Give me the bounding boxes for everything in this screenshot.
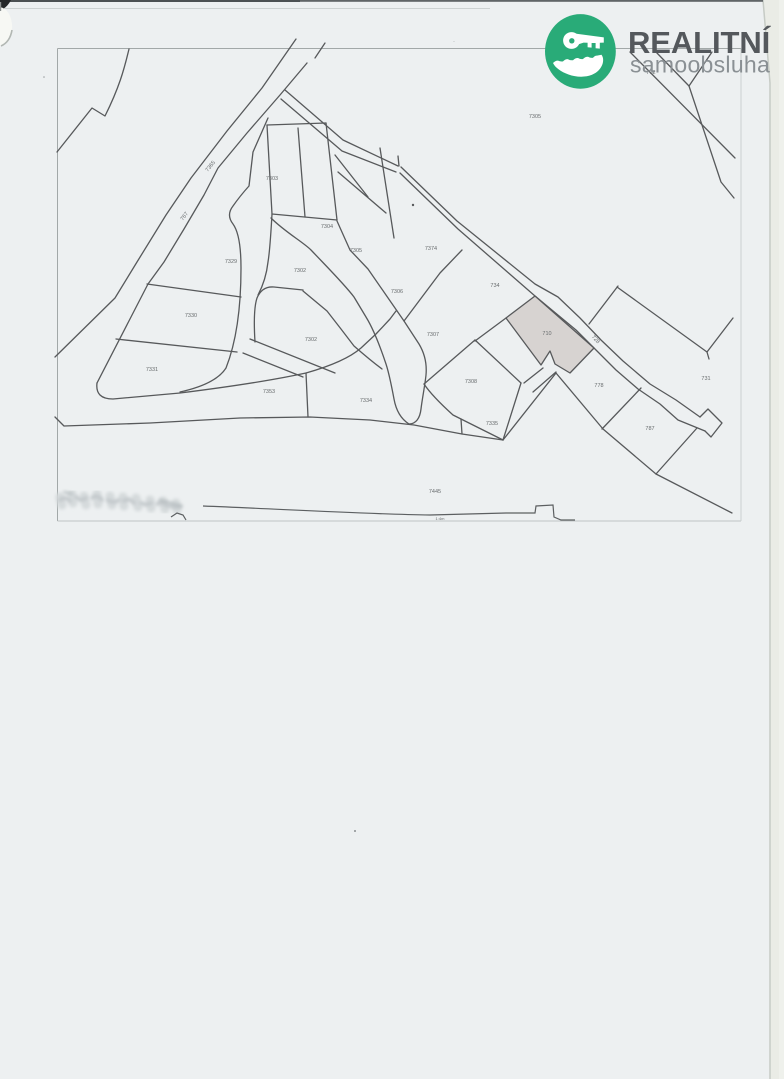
svg-text:7353: 7353: [263, 389, 275, 395]
svg-text:7308: 7308: [465, 379, 477, 385]
svg-text:7304: 7304: [321, 224, 333, 230]
svg-text:787: 787: [645, 426, 654, 432]
svg-text:7374: 7374: [425, 246, 437, 252]
svg-text:7331: 7331: [146, 367, 158, 373]
svg-text:7302: 7302: [294, 268, 306, 274]
svg-text:7305: 7305: [529, 114, 541, 120]
svg-text:7306: 7306: [391, 289, 403, 295]
svg-text:1:4m: 1:4m: [436, 516, 446, 521]
svg-text:7445: 7445: [429, 489, 441, 495]
svg-text:7307: 7307: [427, 332, 439, 338]
svg-text:7335: 7335: [486, 421, 498, 427]
svg-text:7303: 7303: [266, 176, 278, 182]
svg-text:7334: 7334: [360, 398, 372, 404]
svg-text:samoobsluha: samoobsluha: [630, 51, 770, 77]
svg-text:7330: 7330: [185, 313, 197, 319]
svg-text:7305: 7305: [350, 248, 362, 254]
svg-text:7329: 7329: [225, 259, 237, 265]
svg-text:710: 710: [542, 331, 551, 337]
svg-text:734: 734: [490, 283, 499, 289]
svg-text:778: 778: [594, 383, 603, 389]
svg-text:7302: 7302: [305, 337, 317, 343]
svg-text:731: 731: [701, 376, 710, 382]
svg-text:..: ..: [453, 38, 455, 43]
